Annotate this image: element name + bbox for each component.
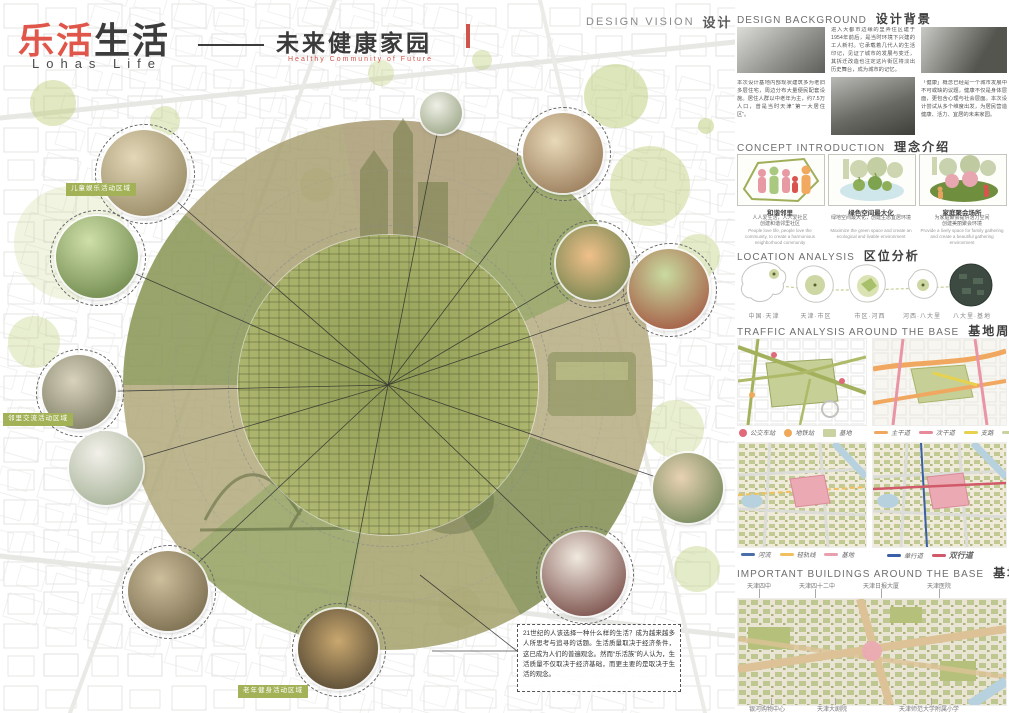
design-poster: 儿童娱乐活动区域 邻里交流活动区域 老年健身活动区域 21世纪的人该选择一种什么… [0, 0, 1009, 713]
poster-subtitle-en: Healthy Community of Future [288, 56, 433, 63]
red-accent-bar [466, 24, 470, 48]
activity-tag: 儿童娱乐活动区域 [66, 183, 136, 196]
photo-bubble-dining [523, 113, 603, 193]
location-label: 八大里·基地 [945, 311, 999, 320]
legend-label: 轻轨线 [797, 550, 816, 559]
photo-bubble-family [653, 453, 723, 523]
family-gathering-illustration [920, 155, 1006, 205]
branch-road-swatch [964, 431, 978, 434]
concept-title-en: CONCEPT INTRODUCTION [737, 143, 885, 154]
concept-title-cn: 理念介绍 [894, 138, 950, 155]
neighborhood-figures-illustration [738, 155, 824, 205]
section-traffic-analysis: TRAFFIC ANALYSIS AROUND THE BASE 基地周边交通分… [737, 322, 1009, 339]
photo-group-people [921, 27, 1007, 73]
one-way-swatch [887, 554, 901, 557]
river-swatch [741, 553, 755, 556]
base-swatch [1002, 431, 1009, 434]
secondary-road-swatch [919, 431, 933, 434]
design-vision-cn: 设计 [703, 12, 733, 31]
main-road-swatch [874, 431, 888, 434]
legend-label: 主干道 [891, 428, 910, 437]
photo-bubble-sepia-group [128, 551, 208, 631]
title-cn-dark: 生活 [94, 20, 170, 61]
photo-bubble-kids-crafts [101, 130, 187, 216]
label-leader [759, 589, 760, 598]
location-label: 天津·市区 [789, 311, 843, 320]
traffic-title-en: TRAFFIC ANALYSIS AROUND THE BASE [737, 327, 959, 338]
building-label: 天津四十二中 [799, 581, 835, 590]
bus-stop-swatch [739, 429, 747, 437]
traffic-title-cn: 基地周边交通分析 [968, 322, 1009, 339]
location-label: 中国·天津 [737, 311, 791, 320]
location-label: 市区·河西 [843, 311, 897, 320]
location-maps [737, 260, 1005, 310]
legend-label: 支路 [981, 428, 994, 437]
legend-oneway-twoway: 单行道 双行道 [887, 550, 982, 561]
design-vision-en: DESIGN VISION [586, 16, 695, 28]
traffic-map-oneway-twoway [872, 442, 1007, 548]
legend-label: 基地 [839, 428, 852, 437]
legend-label: 公交车站 [750, 428, 775, 437]
base-swatch [823, 429, 836, 437]
building-label: 天津大剧院 [817, 704, 847, 713]
concept-en-caption: People love life, people love the commun… [737, 228, 823, 246]
concept-en-caption: Provide a lively space for family gather… [919, 228, 1005, 246]
concept-line: 绿地空间最大化，创建生态宜居环境 [828, 215, 914, 222]
photo-old-apartment [737, 27, 825, 73]
poster-subtitle: 未来健康家园 [276, 24, 432, 58]
traffic-map-rail-river [737, 442, 867, 548]
design-statement-note: 21世纪的人该选择一种什么样的生活？成为越来越多人所思考与追寻的话题。生活质量取… [517, 624, 681, 692]
traffic-map-transit [737, 338, 867, 426]
legend-label: 单行道 [904, 551, 923, 560]
map-china-outline [741, 262, 785, 301]
title-dash [198, 44, 264, 46]
legend-label: 地铁站 [795, 428, 814, 437]
buildings-title-en: IMPORTANT BUILDINGS AROUND THE BASE [737, 569, 984, 580]
buildings-aerial-map [737, 598, 1007, 706]
concept-panel-gathering [919, 154, 1007, 206]
photo-bubble-person [420, 92, 462, 134]
legend-rail-river: 河流 轻轨线 基地 [741, 550, 863, 559]
activity-tag: 老年健身活动区域 [238, 685, 308, 698]
two-way-swatch [932, 554, 946, 557]
section-concept-introduction: CONCEPT INTRODUCTION 理念介绍 [737, 138, 950, 155]
base-swatch [824, 553, 838, 556]
analysis-sidebar: DESIGN BACKGROUND 设计背景 进入大都市边缘的里弄住区建于195… [735, 0, 1009, 713]
metro-station-swatch [784, 429, 792, 437]
legend-roads: 主干道 次干道 支路 基地 [874, 428, 1009, 437]
concept-panel-green-space [828, 154, 916, 206]
background-paragraph-2: 本次设计基地内部现状建筑多为老旧多层住宅，周边分布大量便民配套设施。居住人群以中… [737, 80, 825, 134]
building-label: 天津师范大学附属小学 [899, 704, 959, 713]
concept-panel-neighborhood [737, 154, 825, 206]
poster-title-en: Lohas Life [32, 56, 162, 71]
photo-ruined-building [831, 77, 915, 135]
legend-transit: 公交车站 地铁站 基地 [739, 428, 861, 437]
design-background-title-en: DESIGN BACKGROUND [737, 15, 867, 26]
traffic-map-roads [872, 338, 1007, 426]
photo-bubble-playground [556, 226, 630, 300]
label-leader [881, 589, 882, 598]
photo-bubble-campfire-cooking [298, 609, 378, 689]
activity-tag: 邻里交流活动区域 [3, 413, 73, 426]
photo-bubble-runners [542, 532, 626, 616]
green-space-illustration [829, 155, 915, 205]
background-paragraph-1: 进入大都市边缘的里弄住区建于1954年前后，是当时环境下兴建的工人新村。它承载着… [831, 27, 915, 73]
legend-label: 基地 [841, 550, 854, 559]
photo-bubble-outdoor-group [56, 216, 138, 298]
light-rail-swatch [780, 553, 794, 556]
photo-bubble-kids-running [629, 249, 709, 329]
legend-label: 次干道 [936, 428, 955, 437]
building-label: 银河购物中心 [749, 704, 785, 713]
legend-label: 双行道 [949, 550, 973, 561]
buildings-title-cn: 基地周边重要建筑 [993, 564, 1009, 581]
design-background-title-cn: 设计背景 [876, 10, 932, 27]
concept-en-caption: Maximize the green space and create an e… [828, 228, 914, 240]
concept-line: 创建美丽聚会环境 [919, 221, 1005, 228]
location-label: 河西·八大里 [895, 311, 949, 320]
background-paragraph-3: 「健康」概念已经是一个城市发展中不可或缺的议题，健康不仅是身体层面，更包含心理与… [921, 80, 1007, 134]
label-leader [939, 589, 940, 598]
legend-label: 河流 [758, 550, 771, 559]
photo-bubble-tai-chi [69, 431, 143, 505]
label-leader [815, 589, 816, 598]
section-important-buildings: IMPORTANT BUILDINGS AROUND THE BASE 基地周边… [737, 564, 1009, 581]
section-design-background: DESIGN BACKGROUND 设计背景 [737, 10, 932, 27]
title-cn-red: 乐活 [18, 20, 94, 61]
concept-line: 创建和谐邻里社区 [737, 221, 823, 228]
